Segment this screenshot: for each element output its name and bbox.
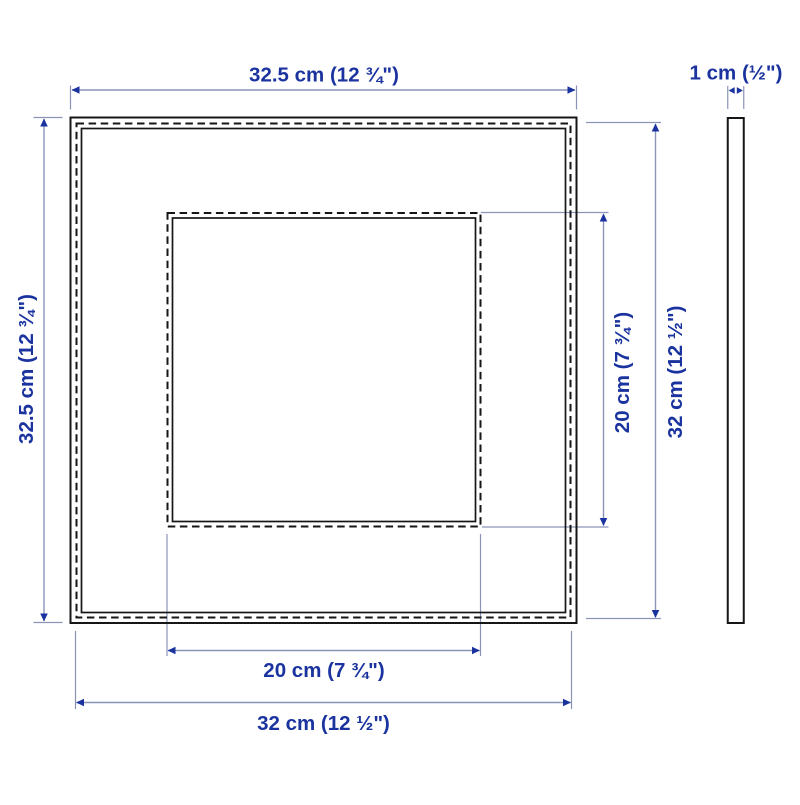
svg-text:32 cm (12 ½"): 32 cm (12 ½") bbox=[257, 712, 390, 735]
svg-text:20 cm (7 ¾"): 20 cm (7 ¾") bbox=[263, 659, 384, 682]
svg-text:32.5 cm (12 ¾"): 32.5 cm (12 ¾") bbox=[15, 294, 38, 444]
svg-text:20 cm (7 ¾"): 20 cm (7 ¾") bbox=[611, 312, 634, 433]
svg-text:32.5 cm (12 ¾"): 32.5 cm (12 ¾") bbox=[249, 64, 399, 87]
svg-text:1 cm (½"): 1 cm (½") bbox=[690, 62, 783, 85]
svg-text:32 cm (12 ½"): 32 cm (12 ½") bbox=[664, 306, 687, 439]
